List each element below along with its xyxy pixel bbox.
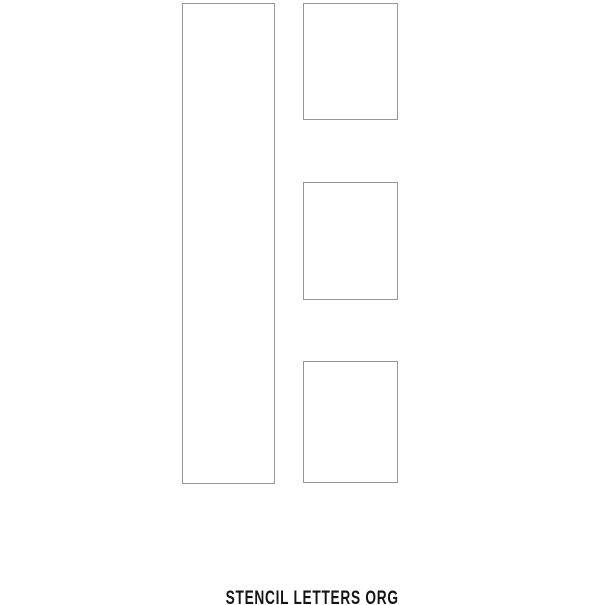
stencil-letter-e-sheet: STENCIL LETTERS ORG xyxy=(0,0,605,605)
letter-e-middle-arm-panel xyxy=(303,182,398,300)
letter-e-vertical-bar-panel xyxy=(182,3,275,484)
letter-e-bottom-arm-panel xyxy=(303,361,398,483)
watermark-text: STENCIL LETTERS ORG xyxy=(226,589,399,605)
letter-e-top-arm-panel xyxy=(303,3,398,120)
watermark-container: STENCIL LETTERS ORG xyxy=(20,589,605,605)
